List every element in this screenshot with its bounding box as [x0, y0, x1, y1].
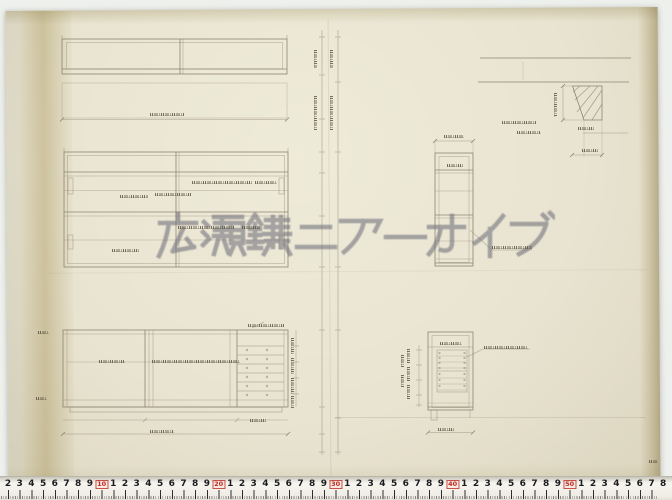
scale-number: 2 [5, 479, 11, 489]
pencil-note [291, 396, 294, 408]
scale-number: 1 [344, 479, 350, 489]
scale-number: 7 [531, 479, 537, 489]
scale-number: 3 [602, 479, 608, 489]
pencil-note [152, 360, 240, 363]
pencil-note [330, 50, 333, 68]
scale-number: 4 [28, 479, 34, 489]
scale-number: 4 [379, 479, 385, 489]
scale-number: 5 [40, 479, 46, 489]
scale-number: 9 [204, 479, 210, 489]
wm-char-a [341, 221, 380, 252]
pencil-note [192, 181, 252, 184]
scale-number: 2 [356, 479, 362, 489]
scale-number: 5 [157, 479, 163, 489]
scale-number: 8 [660, 479, 666, 489]
scale-number: 7 [63, 479, 69, 489]
scale-number: 4 [145, 479, 151, 489]
pencil-note [250, 419, 266, 422]
pencil-note [36, 397, 47, 400]
wm-char-ka [429, 216, 464, 254]
pencil-note [444, 135, 464, 138]
scale-number: 5 [391, 479, 397, 489]
scale-number: 8 [309, 479, 315, 489]
archive-watermark [150, 208, 555, 264]
pencil-note [492, 246, 532, 249]
scale-number: 6 [52, 479, 58, 489]
scale-number: 4 [496, 479, 502, 489]
scale-number: 2 [122, 479, 128, 489]
measuring-scale: 2345678910123456789201234567893012345678… [0, 476, 672, 500]
scale-number: 1 [110, 479, 116, 489]
scale-number: 8 [75, 479, 81, 489]
pencil-note [150, 430, 174, 433]
pencil-note [438, 428, 454, 431]
pencil-note [447, 164, 463, 167]
scale-number: 2 [239, 479, 245, 489]
wm-char-hiro [159, 214, 196, 256]
scale-number: 7 [180, 479, 186, 489]
scale-number: 9 [87, 479, 93, 489]
scanned-drawing-page: 2345678910123456789201234567893012345678… [0, 0, 672, 500]
scale-decade-stamp: 50 [563, 480, 576, 489]
plan-view-drawing [60, 35, 289, 122]
scale-decade-stamp: 30 [329, 480, 342, 489]
pencil-note [502, 121, 536, 124]
pencil-note [120, 195, 148, 198]
scale-number: 9 [555, 479, 561, 489]
pencil-note [242, 226, 260, 229]
pencil-note [649, 460, 658, 463]
pencil-note [314, 96, 317, 130]
wm-char-i [475, 216, 503, 256]
pencil-note [330, 96, 333, 130]
pencil-note [407, 349, 410, 363]
scale-number: 1 [461, 479, 467, 489]
pencil-note [178, 226, 234, 229]
scale-number: 8 [543, 479, 549, 489]
pencil-note [99, 360, 125, 363]
scale-decade-stamp: 20 [212, 480, 225, 489]
scale-number: 3 [485, 479, 491, 489]
pencil-note [407, 367, 410, 381]
scale-number: 9 [321, 479, 327, 489]
scale-number: 6 [286, 479, 292, 489]
pencil-note [407, 385, 410, 399]
scale-number: 7 [648, 479, 654, 489]
scale-number: 6 [403, 479, 409, 489]
scale-number: 3 [17, 479, 23, 489]
pencil-note [578, 127, 594, 130]
scale-number: 7 [414, 479, 420, 489]
scale-number: 5 [274, 479, 280, 489]
pencil-note [291, 378, 294, 394]
scale-number: 3 [251, 479, 257, 489]
scale-number: 1 [227, 479, 233, 489]
scale-decade-stamp: 10 [95, 480, 108, 489]
scale-decade-stamp: 40 [446, 480, 459, 489]
pencil-note [150, 113, 184, 116]
scale-number: 8 [426, 479, 432, 489]
scale-number: 6 [637, 479, 643, 489]
wm-char-se [203, 217, 244, 254]
pencil-note [155, 193, 191, 196]
scale-number: 4 [613, 479, 619, 489]
scale-number: 4 [262, 479, 268, 489]
scale-number: 2 [473, 479, 479, 489]
pencil-note [517, 131, 541, 134]
pencil-note [255, 181, 277, 184]
pencil-note [112, 249, 139, 252]
scale-number: 3 [368, 479, 374, 489]
pencil-note [291, 338, 294, 354]
wm-char-ni [297, 227, 335, 247]
scale-number: 1 [578, 479, 584, 489]
pencil-note [38, 331, 49, 334]
pencil-note [582, 149, 598, 152]
scale-number: 3 [134, 479, 140, 489]
scale-number: 7 [297, 479, 303, 489]
scale-number: 9 [438, 479, 444, 489]
pencil-note [484, 346, 528, 349]
wm-char-kama [248, 215, 290, 254]
scale-number: 2 [590, 479, 596, 489]
scale-number: 8 [192, 479, 198, 489]
scale-number: 6 [169, 479, 175, 489]
pencil-note [314, 50, 317, 68]
scale-number: 5 [625, 479, 631, 489]
scale-number: 5 [508, 479, 514, 489]
pencil-note [401, 375, 404, 387]
pencil-note [291, 358, 294, 374]
pencil-note [440, 342, 462, 345]
scale-number: 6 [520, 479, 526, 489]
pencil-note [554, 93, 557, 117]
pencil-note [248, 324, 284, 327]
pencil-note [401, 355, 404, 367]
